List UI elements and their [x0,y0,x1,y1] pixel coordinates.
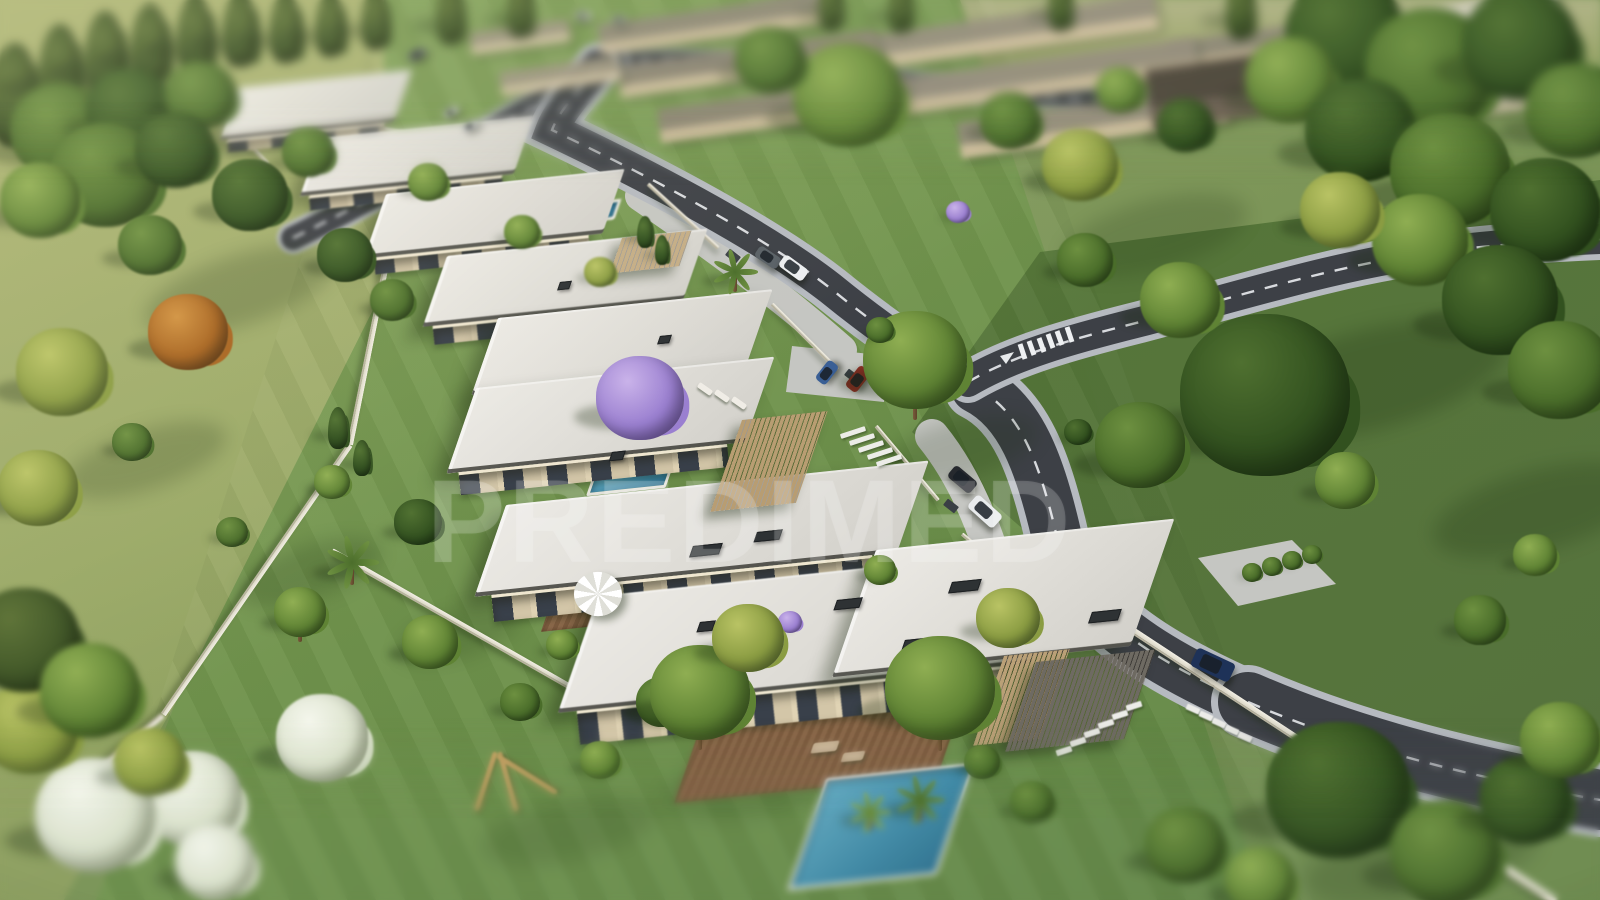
tree-canopy [314,465,350,499]
conifer-tree [808,0,852,28]
tree-canopy [1042,129,1118,201]
tree-canopy [1140,262,1220,338]
tree-canopy [118,215,182,276]
tripod-leg [474,751,498,812]
scene-layers [0,0,1600,900]
car-cabin [783,259,801,276]
tree-canopy [818,0,842,31]
tree-canopy [282,127,334,176]
conifer-tree [349,0,401,46]
tree-canopy [980,92,1040,149]
tree [274,586,326,638]
car-cabin [759,249,775,264]
tree [1454,594,1506,646]
tree-canopy [1057,233,1113,286]
car [442,105,460,120]
tree [735,25,805,95]
tree [1140,260,1220,340]
conifer-tree [424,0,476,41]
palm-tree [713,250,757,294]
tree-canopy [1157,98,1213,151]
tree-canopy [1302,545,1322,564]
tree-canopy [1145,807,1225,883]
tree [1508,318,1600,422]
tree [504,214,540,250]
tree [0,160,80,240]
tree [1096,66,1144,114]
car [1190,647,1237,683]
tree-canopy [1064,419,1092,446]
car [612,15,627,23]
tree-canopy [1513,534,1557,576]
tree [1520,700,1600,780]
stepping-stone [1055,746,1072,757]
tree [1300,170,1380,250]
tree-canopy [216,517,248,547]
tree-canopy [504,215,540,249]
palm-tree [326,536,378,588]
car-cabin [578,13,587,19]
tree [282,126,334,178]
stepping-stone [1237,731,1252,742]
tree-canopy [888,0,912,33]
conifer-tree [1038,0,1082,28]
tree-canopy [1225,847,1295,900]
tree [1042,127,1118,203]
tree [1266,718,1410,862]
tree [980,90,1040,150]
watermark-text: PREDIMED [427,454,1074,590]
tree-canopy [500,683,540,721]
tree [1064,418,1092,446]
conifer-tree [878,0,922,30]
tree [402,614,458,670]
tree-shadow-patch [1423,443,1600,577]
tree [1513,533,1557,577]
tree-canopy [580,741,620,779]
tree-canopy [1048,0,1072,31]
tree-canopy [866,317,894,344]
tree-canopy [402,615,458,668]
tree-canopy [274,587,326,636]
car [754,245,783,270]
tree-canopy [1315,452,1375,509]
palm-tree [896,776,944,824]
car [814,359,839,386]
tree-canopy [596,356,684,440]
tree [1095,400,1185,490]
tree [0,448,78,528]
aerial-render-scene: PREDIMED [0,0,1600,900]
tree-canopy [361,0,390,50]
tree-canopy [1520,702,1600,778]
tree [317,227,373,283]
tree-canopy [16,328,108,415]
tree [946,200,970,224]
tree [408,162,448,202]
blossom-tree [276,692,368,784]
tree [112,422,152,462]
car-cabin [445,108,455,117]
palm-tree [850,792,890,832]
tree-canopy [40,643,140,738]
conifer-tree [496,0,544,34]
tree [596,354,684,442]
tree [1302,544,1322,564]
car-cabin [614,17,622,23]
tree-canopy [353,440,371,477]
tree-canopy [546,630,578,660]
tree-canopy [584,257,616,287]
tree-canopy [212,159,288,231]
tree-canopy [0,162,80,238]
tree [1525,60,1600,160]
warehouse-building [499,56,621,96]
tree-canopy [1095,402,1185,488]
tree [584,256,616,288]
tree-canopy [712,604,784,672]
tree-canopy [1010,781,1054,823]
tree [314,464,350,500]
tree [866,316,894,344]
tree-canopy [0,450,78,526]
car [575,11,592,20]
tree-canopy [1454,595,1506,644]
tree-canopy [112,423,152,461]
tree [40,640,140,740]
tree-canopy [317,228,373,281]
palm-frond [870,810,891,815]
tree [1157,97,1213,153]
conifer-tree [320,410,356,446]
tree-canopy [175,824,255,900]
tree [1315,450,1375,510]
tree-canopy [507,0,533,38]
tree [1057,232,1113,288]
tree [712,602,784,674]
conifer-tree [1214,0,1266,36]
car-cabin [410,50,421,60]
tree [580,740,620,780]
tree [976,586,1040,650]
tree-canopy [1508,321,1600,420]
tree-canopy [276,694,368,781]
tree-canopy [436,0,465,45]
tree [118,213,182,277]
tree [216,516,248,548]
tree [964,744,1000,780]
car [407,46,427,62]
tree-canopy [1226,0,1255,40]
tree [16,326,108,418]
tree-canopy [735,27,805,94]
tree-canopy [328,407,348,448]
tree [1145,805,1225,885]
tree-canopy [976,588,1040,649]
tree [793,40,903,150]
tree [135,110,215,190]
wooden-tripod-frame [455,752,545,842]
tree-canopy [793,43,903,148]
tree-canopy [1300,172,1380,248]
tree-canopy [655,235,669,265]
tree-canopy [885,636,995,741]
tree-canopy [370,279,414,321]
tree-canopy [964,745,1000,779]
tree [500,682,540,722]
tree [148,292,228,372]
tree [1225,845,1295,900]
car-cabin [819,366,834,381]
tree [1010,780,1054,824]
tree [546,629,578,661]
tree-canopy [946,201,970,224]
blossom-tree [175,822,255,900]
tree-canopy [1266,722,1410,859]
tree-canopy [135,112,215,188]
conifer-tree [346,442,378,474]
tree-canopy [148,294,228,370]
tree-canopy [408,163,448,201]
conifer-tree [649,237,675,263]
tree-canopy [1096,67,1144,113]
palm-frond [352,559,379,566]
car [778,254,810,282]
tree [370,278,414,322]
